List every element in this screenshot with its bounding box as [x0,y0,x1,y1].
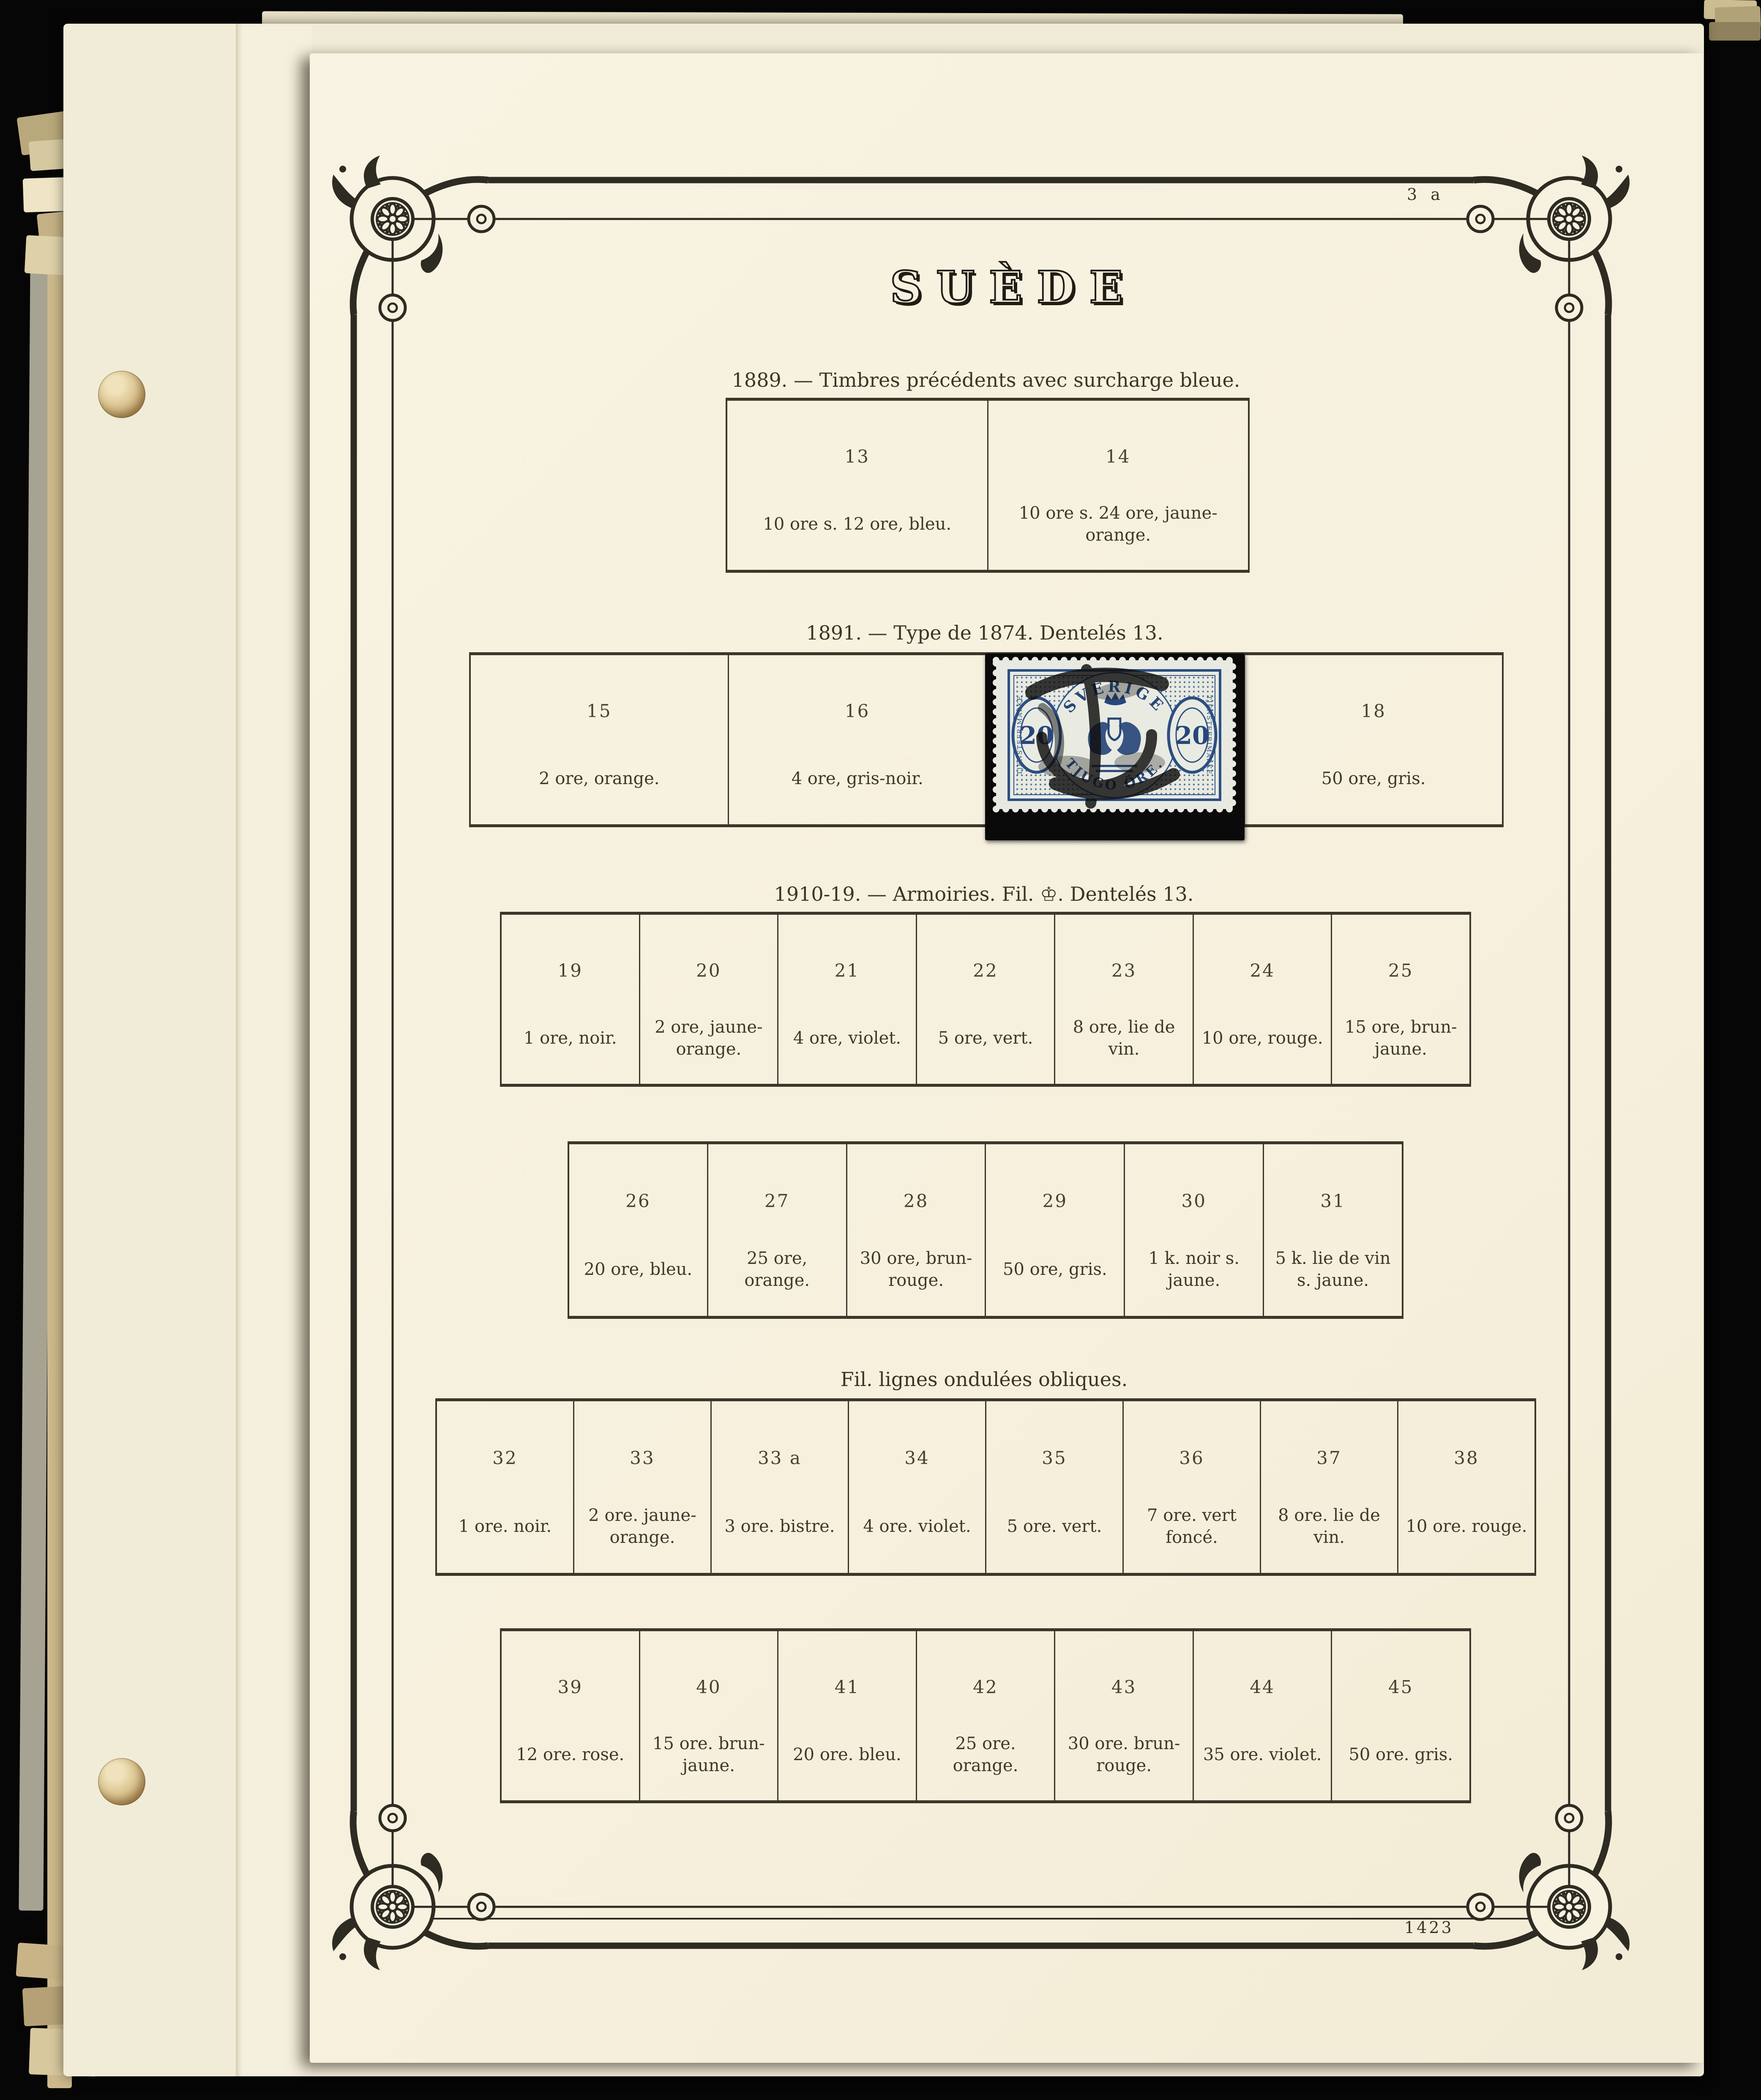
binder-punch-hole [98,371,145,418]
album-page: SUÈDE 3 a 1423 1889. — Timbres précédent… [310,53,1703,2063]
section-header-fil: Fil. lignes ondulées obliques. [435,1368,1533,1391]
stamp-box-22: 22 5 ore, vert. [916,915,1054,1084]
stamp-box-33a: 33 a 3 ore. bistre. [710,1401,848,1573]
catalog-number: 30 [1125,1190,1263,1211]
catalog-number: 33 [574,1447,710,1468]
stamp-box-19: 19 1 ore, noir. [502,915,639,1084]
catalog-number: 14 [988,446,1248,467]
catalog-number: 29 [986,1190,1124,1211]
catalog-number: 27 [708,1190,846,1211]
stamp-box-40: 40 15 ore. brun-jaune. [639,1631,778,1800]
sweden-20-ore-stamp: 20 20 TJENSTEFRIMARKE TJENSTEFRIMARKE SV… [992,657,1237,814]
page-stack-edge [1709,22,1761,41]
stamp-box-41: 41 20 ore. bleu. [777,1631,916,1800]
stamp-box-16: 16 4 ore, gris-noir. [728,655,986,824]
section-header-1891: 1891. — Type de 1874. Dentelés 13. [469,621,1500,644]
stamp-box-34: 34 4 ore. violet. [848,1401,985,1573]
catalog-number: 25 [1332,960,1469,981]
stamp-box-24: 24 10 ore, rouge. [1193,915,1331,1084]
catalog-number: 45 [1332,1677,1469,1698]
stamp-box-31: 31 5 k. lie de vin s. jaune. [1263,1144,1402,1316]
catalog-number: 41 [778,1677,916,1698]
stamp-box-43: 43 30 ore. brun-rouge. [1054,1631,1193,1800]
stamp-description: 5 ore, vert. [917,1027,1054,1049]
stamp-box-38: 38 10 ore. rouge. [1397,1401,1534,1573]
album-sheet-edge-band [236,24,311,2076]
photo-backdrop: SUÈDE 3 a 1423 1889. — Timbres précédent… [0,0,1761,2100]
page-title: SUÈDE [310,261,1703,313]
stamp-description: 15 ore. brun-jaune. [640,1733,778,1777]
stamp-description: 20 ore, bleu. [569,1258,707,1280]
stamp-frame-text-left: TJENSTEFRIMARKE [1016,695,1024,775]
catalog-number: 32 [437,1447,573,1468]
catalog-number: 26 [569,1190,707,1211]
stamp-description: 4 ore, gris-noir. [729,768,986,790]
stamp-description: 2 ore, orange. [471,768,728,790]
stamp-frame-text-right: TJENSTEFRIMARKE [1205,695,1213,775]
stamp-grid-fil-row2: 39 12 ore. rose. 40 15 ore. brun-jaune. … [500,1628,1471,1803]
stamp-description: 4 ore, violet. [778,1027,916,1049]
corner-rosette-ornament [332,1811,488,1970]
stamp-numeral-right: 20 [1175,721,1209,750]
stamp-description: 2 ore. jaune-orange. [574,1504,710,1548]
stamp-description: 8 ore, lie de vin. [1055,1016,1193,1060]
stamp-grid-fil-row1: 32 1 ore. noir. 33 2 ore. jaune-orange. … [435,1398,1536,1576]
stamp-description: 4 ore. violet. [849,1515,985,1537]
stamp-description: 10 ore s. 24 ore, jaune-orange. [988,502,1248,546]
catalog-number: 40 [640,1677,778,1698]
stamp-description: 25 ore. orange. [917,1733,1054,1777]
stamp-description: 5 k. lie de vin s. jaune. [1264,1247,1402,1291]
stamp-box-28: 28 30 ore, brun-rouge. [846,1144,985,1316]
stamp-box-42: 42 25 ore. orange. [916,1631,1054,1800]
catalog-number: 31 [1264,1190,1402,1211]
catalog-number: 34 [849,1447,985,1468]
catalog-number: 15 [471,701,728,722]
stamp-box-44: 44 35 ore. violet. [1193,1631,1331,1800]
stamp-box-39: 39 12 ore. rose. [502,1631,639,1800]
stamp-description: 10 ore s. 12 ore, bleu. [727,513,987,535]
catalog-number: 13 [727,446,987,467]
stamp-box-33: 33 2 ore. jaune-orange. [573,1401,710,1573]
stamp-box-35: 35 5 ore. vert. [985,1401,1122,1573]
stamp-grid-1910-row1: 19 1 ore, noir. 20 2 ore, jaune-orange. … [500,912,1471,1087]
stamp-box-20: 20 2 ore, jaune-orange. [639,915,778,1084]
stamp-description: 1 ore, noir. [502,1027,639,1049]
stamp-description: 5 ore. vert. [986,1515,1122,1537]
stamp-description: 10 ore, rouge. [1194,1027,1331,1049]
catalog-number: 37 [1261,1447,1397,1468]
stamp-box-25: 25 15 ore, brun-jaune. [1331,915,1469,1084]
stamp-box-36: 36 7 ore. vert foncé. [1122,1401,1260,1573]
catalog-number: 28 [847,1190,985,1211]
stamp-box-32: 32 1 ore. noir. [437,1401,573,1573]
stamp-box-27: 27 25 ore, orange. [707,1144,846,1316]
stamp-description: 25 ore, orange. [708,1247,846,1291]
stamp-box-21: 21 4 ore, violet. [777,915,916,1084]
catalog-number: 23 [1055,960,1193,981]
stamp-box-15: 15 2 ore, orange. [471,655,728,824]
stamp-box-29: 29 50 ore, gris. [985,1144,1124,1316]
stamp-description: 50 ore. gris. [1332,1744,1469,1766]
stamp-box-13: 13 10 ore s. 12 ore, bleu. [727,401,987,570]
stamp-description: 30 ore, brun-rouge. [847,1247,985,1291]
catalog-number: 16 [729,701,986,722]
stamp-box-18: 18 50 ore, gris. [1244,655,1502,824]
catalog-number: 35 [986,1447,1122,1468]
stamp-description: 50 ore, gris. [1245,768,1502,790]
stamp-box-37: 37 8 ore. lie de vin. [1260,1401,1397,1573]
stamp-description: 35 ore. violet. [1194,1744,1331,1766]
catalog-number: 36 [1124,1447,1260,1468]
section-header-1910: 1910-19. — Armoiries. Fil. ♔. Dentelés 1… [500,883,1468,905]
stamp-mount: 20 20 TJENSTEFRIMARKE TJENSTEFRIMARKE SV… [985,654,1245,840]
catalog-number: 19 [502,960,639,981]
stamp-description: 8 ore. lie de vin. [1261,1504,1397,1548]
stamp-box-45: 45 50 ore. gris. [1331,1631,1469,1800]
stamp-description: 50 ore, gris. [986,1258,1124,1280]
catalog-number: 33 a [712,1447,848,1468]
stamp-grid-1889: 13 10 ore s. 12 ore, bleu. 14 10 ore s. … [726,398,1250,573]
section-header-1889: 1889. — Timbres précédents avec surcharg… [726,369,1246,391]
stamp-description: 15 ore, brun-jaune. [1332,1016,1469,1060]
stamp-box-30: 30 1 k. noir s. jaune. [1124,1144,1263,1316]
stamp-description: 1 ore. noir. [437,1515,573,1537]
stamp-box-23: 23 8 ore, lie de vin. [1054,915,1193,1084]
stamp-description: 3 ore. bistre. [712,1515,848,1537]
catalog-number: 38 [1398,1447,1534,1468]
stamp-description: 7 ore. vert foncé. [1124,1504,1260,1548]
catalog-number: 22 [917,960,1054,981]
catalog-number: 39 [502,1677,639,1698]
stamp-description: 2 ore, jaune-orange. [640,1016,778,1060]
corner-rosette-ornament [1474,1811,1630,1970]
catalog-number: 44 [1194,1677,1331,1698]
stamp-grid-1910-row2: 26 20 ore, bleu. 27 25 ore, orange. 28 3… [568,1141,1403,1319]
stamp-description: 12 ore. rose. [502,1744,639,1766]
catalog-number: 21 [778,960,916,981]
stamp-box-14: 14 10 ore s. 24 ore, jaune-orange. [987,401,1248,570]
catalog-number: 20 [640,960,778,981]
catalog-number: 24 [1194,960,1331,981]
stamp-description: 1 k. noir s. jaune. [1125,1247,1263,1291]
stamp-description: 20 ore. bleu. [778,1744,916,1766]
binder-punch-hole [98,1758,145,1805]
catalog-number: 42 [917,1677,1054,1698]
catalog-number: 18 [1245,701,1502,722]
stamp-description: 10 ore. rouge. [1398,1515,1534,1537]
stamp-description: 30 ore. brun-rouge. [1055,1733,1193,1777]
catalog-number: 43 [1055,1677,1193,1698]
plate-number: 1423 [1404,1918,1454,1937]
stamp-box-26: 26 20 ore, bleu. [569,1144,707,1316]
page-number: 3 a [1407,185,1444,204]
